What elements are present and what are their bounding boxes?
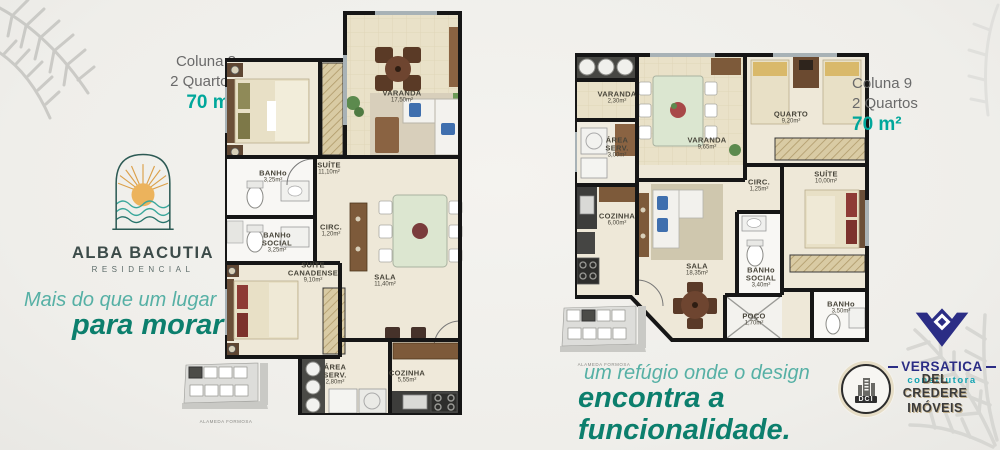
coluna-9-header: Coluna 9 2 Quartos 70 m² xyxy=(852,74,962,138)
site-keyplan-map xyxy=(556,300,652,356)
brand-name: ALBA BACUTIA xyxy=(68,244,218,263)
del-credere-logo: DCI DEL CREDERE IMÓVEIS xyxy=(841,362,981,420)
coluna-9-type: 2 Quartos xyxy=(852,94,962,114)
coluna-9-title: Coluna 9 xyxy=(852,74,962,94)
brand-subtitle: RESIDENCIAL xyxy=(68,265,218,274)
coluna-8-header: Coluna 8 2 Quartos 70 m² xyxy=(140,52,236,116)
versatica-rule-right xyxy=(986,366,996,368)
palm-leaf-top-left-decoration xyxy=(0,0,163,163)
building-icon xyxy=(854,376,878,398)
floorplan-coluna-8-drawing xyxy=(225,5,465,415)
tagline-left-line1: Mais do que um lugar xyxy=(24,290,234,310)
coluna-8-type: 2 Quartos xyxy=(140,72,236,92)
coluna-9-size: 70 m² xyxy=(852,114,902,135)
del-credere-line2: IMÓVEIS xyxy=(889,401,981,415)
tagline-left-line2: para morar xyxy=(72,310,234,342)
floorplan-coluna-8: VARANDA17,50m² SUÍTE11,10m² BANHo3,25m² … xyxy=(225,5,465,415)
del-credere-line1: DEL CREDERE xyxy=(889,372,981,401)
del-credere-name: DEL CREDERE IMÓVEIS xyxy=(889,372,981,415)
keyplan-coluna-9: ALAMEDA FORMOSA xyxy=(556,300,652,367)
tagline-left: Mais do que um lugar para morar xyxy=(24,290,234,342)
versatica-chevron-icon xyxy=(910,306,974,352)
alba-bacutia-logo: ALBA BACUTIA RESIDENCIAL xyxy=(68,143,218,274)
flyer-canvas: Coluna 8 2 Quartos 70 m² xyxy=(0,0,1000,450)
del-credere-badge: DCI xyxy=(841,364,891,414)
keyplan-street-label: ALAMEDA FORMOSA xyxy=(178,419,274,424)
arch-sun-waves-icon xyxy=(104,143,182,235)
coluna-8-title: Coluna 8 xyxy=(140,52,236,72)
del-credere-badge-text: DCI xyxy=(855,396,876,403)
